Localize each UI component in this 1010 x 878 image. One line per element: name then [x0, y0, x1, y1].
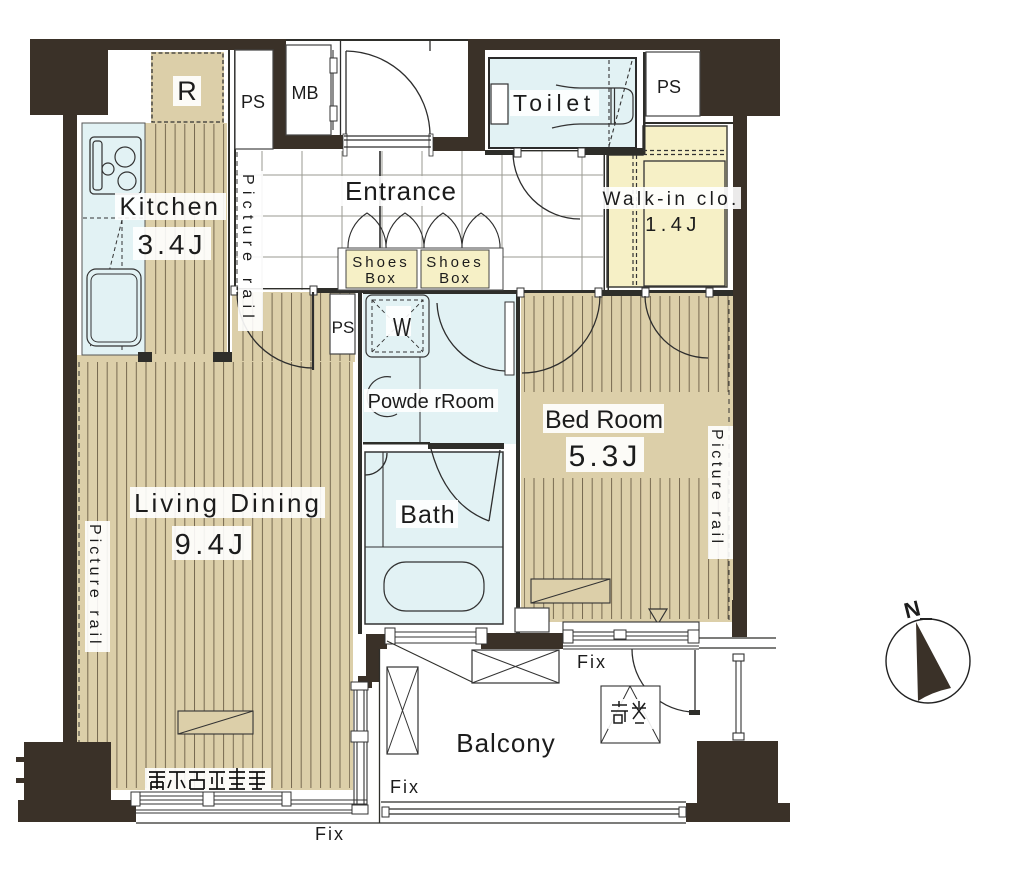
svg-text:PS: PS [241, 92, 265, 112]
svg-text:Kitchen: Kitchen [120, 193, 221, 221]
svg-text:9.4J: 9.4J [175, 529, 248, 561]
svg-text:Bath: Bath [400, 501, 455, 529]
svg-text:Powde rRoom: Powde rRoom [368, 391, 495, 413]
svg-text:W: W [393, 312, 411, 342]
svg-text:Picture rail: Picture rail [86, 524, 103, 648]
svg-text:1.4J: 1.4J [645, 214, 701, 236]
svg-text:PS: PS [657, 77, 681, 97]
svg-text:Fix: Fix [315, 824, 345, 844]
svg-text:Walk-in clo.: Walk-in clo. [602, 189, 739, 210]
svg-text:3.4J: 3.4J [138, 229, 207, 260]
svg-text:Fix: Fix [390, 777, 420, 797]
svg-text:PS: PS [332, 318, 355, 337]
svg-text:R: R [177, 76, 197, 106]
svg-text:Box: Box [439, 270, 471, 287]
svg-text:Shoes: Shoes [426, 254, 484, 271]
svg-text:Picture rail: Picture rail [708, 429, 725, 547]
svg-text:Box: Box [365, 270, 397, 287]
svg-text:Shoes: Shoes [352, 254, 410, 271]
svg-text:Bed Room: Bed Room [545, 406, 663, 434]
svg-text:Toilet: Toilet [513, 90, 595, 116]
svg-text:MB: MB [292, 83, 319, 103]
svg-text:Balcony: Balcony [456, 728, 556, 758]
svg-text:Entrance: Entrance [345, 176, 457, 206]
svg-text:Picture rail: Picture rail [239, 174, 256, 324]
svg-text:Living Dining: Living Dining [134, 488, 322, 518]
svg-text:5.3J: 5.3J [569, 440, 642, 473]
svg-text:Fix: Fix [577, 652, 607, 672]
